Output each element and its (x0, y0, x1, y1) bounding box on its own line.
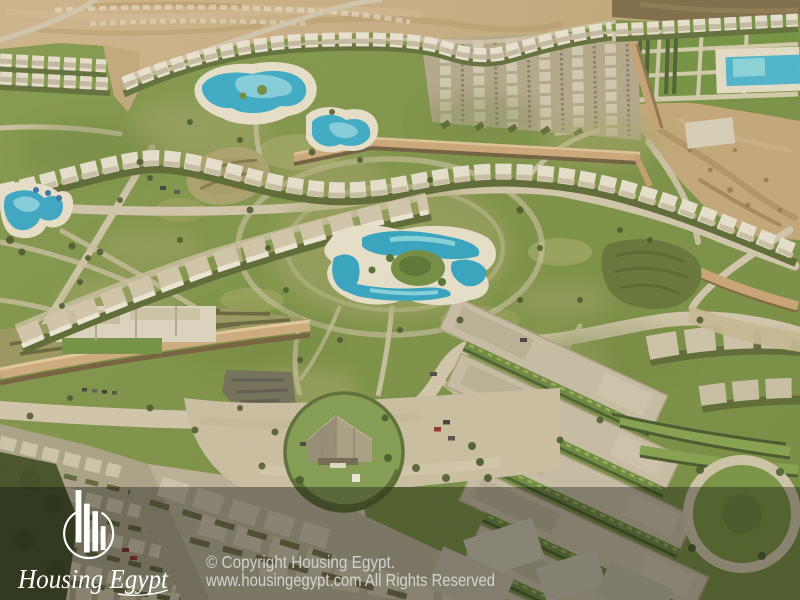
svg-text:www.housingegypt.com All Right: www.housingegypt.com All Rights Reserved (205, 570, 495, 590)
svg-text:© Copyright Housing Egypt.: © Copyright Housing Egypt. (206, 552, 395, 572)
svg-text:Housing Egypt: Housing Egypt (17, 564, 169, 594)
